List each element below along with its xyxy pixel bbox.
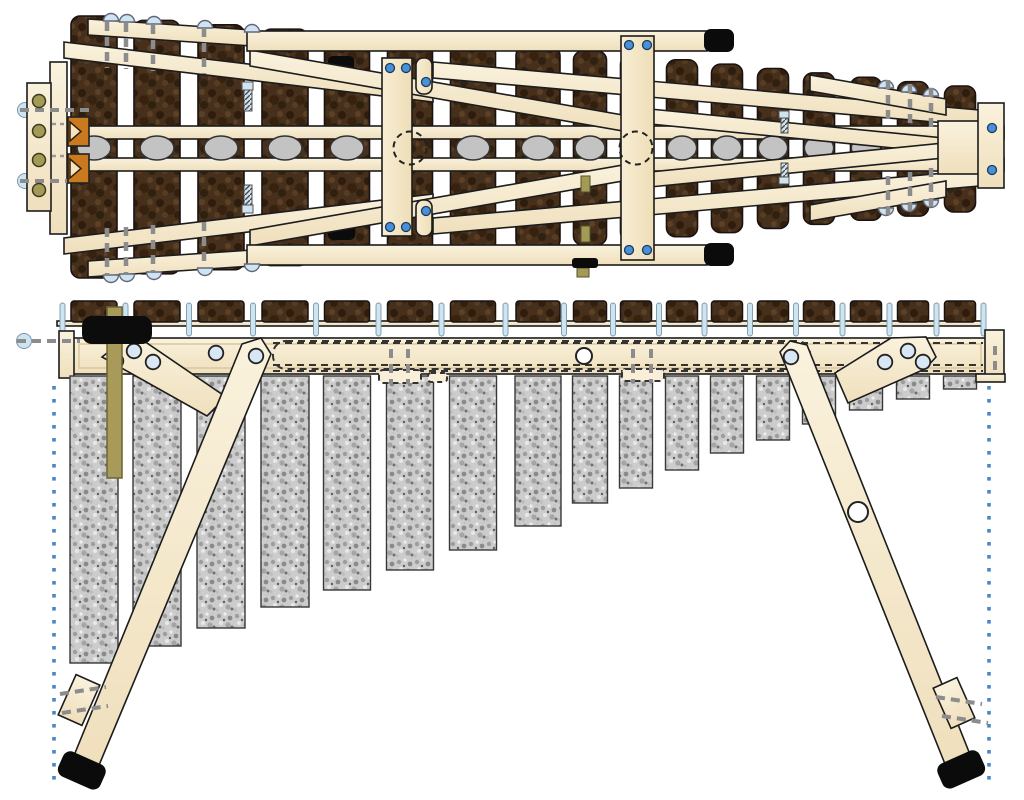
guide-dot bbox=[987, 607, 991, 611]
resonator-top bbox=[204, 136, 238, 160]
guide-dot bbox=[987, 724, 991, 728]
guide-dot bbox=[52, 776, 56, 780]
bar-post bbox=[503, 303, 508, 336]
resonator-top bbox=[140, 136, 174, 160]
guide-dot bbox=[52, 711, 56, 715]
screw-shank bbox=[244, 185, 252, 206]
guide-dot bbox=[987, 386, 991, 390]
bar-elevation bbox=[516, 301, 560, 322]
cleat-block-left bbox=[379, 370, 421, 383]
guide-dot bbox=[987, 542, 991, 546]
end-board-back bbox=[50, 62, 67, 234]
guide-dot bbox=[987, 568, 991, 572]
cleat-stub-left bbox=[428, 373, 447, 382]
end-board-hole bbox=[33, 95, 46, 108]
screw-head bbox=[242, 205, 253, 213]
screw-dot bbox=[422, 207, 431, 216]
end-board-hole bbox=[33, 154, 46, 167]
resonator-tube bbox=[620, 376, 653, 488]
resonator-top bbox=[575, 136, 605, 160]
guide-dot bbox=[987, 646, 991, 650]
dome-screw-head bbox=[198, 21, 213, 28]
bar-elevation bbox=[621, 301, 652, 322]
resonator-tube bbox=[711, 376, 744, 453]
guide-dot bbox=[52, 503, 56, 507]
screw-head bbox=[779, 177, 789, 184]
dome-screw-head bbox=[120, 274, 135, 282]
guide-dot bbox=[987, 438, 991, 442]
end-board-hole bbox=[33, 184, 46, 197]
guide-dot bbox=[52, 750, 56, 754]
bar-elevation bbox=[388, 301, 433, 322]
guide-dot bbox=[52, 659, 56, 663]
cross-brace-2 bbox=[621, 36, 654, 260]
dome-screw-head bbox=[120, 15, 135, 23]
screw-shank bbox=[781, 163, 788, 178]
end-tab bbox=[938, 121, 980, 174]
resonator-tube bbox=[757, 376, 790, 440]
guide-dot bbox=[987, 451, 991, 455]
guide-dot bbox=[987, 399, 991, 403]
end-plate bbox=[978, 103, 1004, 188]
guide-dot bbox=[52, 737, 56, 741]
brace-tab-top bbox=[416, 58, 432, 94]
bar-elevation bbox=[898, 301, 929, 322]
bolt-hole bbox=[784, 350, 799, 365]
screw-shank bbox=[781, 118, 788, 133]
rail-end-cap-left bbox=[59, 331, 74, 378]
resonator-top bbox=[330, 136, 364, 160]
guide-dot bbox=[987, 750, 991, 754]
guide-dot bbox=[987, 581, 991, 585]
guide-dot bbox=[52, 412, 56, 416]
guide-dot bbox=[52, 594, 56, 598]
bar-post bbox=[794, 303, 799, 336]
guide-dot bbox=[987, 425, 991, 429]
guide-dot bbox=[52, 438, 56, 442]
bar-elevation bbox=[945, 301, 976, 322]
rail-end-cap-top bbox=[704, 29, 734, 52]
marimba-plan-diagram bbox=[0, 0, 1024, 800]
end-board-hole bbox=[33, 125, 46, 138]
guide-dot bbox=[52, 542, 56, 546]
guide-dot bbox=[52, 555, 56, 559]
guide-dot bbox=[987, 503, 991, 507]
resonator-tube bbox=[261, 376, 309, 607]
resonator-tubes bbox=[70, 376, 977, 663]
resonator-tube bbox=[450, 376, 497, 550]
guide-dot bbox=[987, 529, 991, 533]
guide-dot bbox=[52, 724, 56, 728]
peg-lower bbox=[581, 226, 590, 242]
bar-elevation bbox=[758, 301, 789, 322]
guide-dot bbox=[52, 581, 56, 585]
bar-post bbox=[934, 303, 939, 336]
bolt-hole bbox=[209, 346, 224, 361]
resonator-tube bbox=[387, 376, 434, 570]
bar-elevation bbox=[804, 301, 835, 322]
dome-screw-head bbox=[245, 264, 260, 272]
side-view bbox=[17, 301, 1006, 792]
guide-dot bbox=[987, 685, 991, 689]
bar-post bbox=[657, 303, 662, 336]
bar-post bbox=[611, 303, 616, 336]
guide-dot bbox=[987, 490, 991, 494]
screw-dot bbox=[988, 124, 997, 133]
guide-dot bbox=[987, 763, 991, 767]
bar-elevation bbox=[712, 301, 743, 322]
bar-post bbox=[562, 303, 567, 336]
resonator-top bbox=[758, 136, 787, 160]
bolt-hole bbox=[249, 349, 264, 364]
bar-elevation bbox=[667, 301, 698, 322]
bar-elevation bbox=[574, 301, 607, 322]
guide-dot bbox=[987, 776, 991, 780]
guide-dot bbox=[52, 464, 56, 468]
open-hole bbox=[848, 502, 868, 522]
guide-dot bbox=[52, 399, 56, 403]
guide-dot bbox=[987, 555, 991, 559]
bolt-hole bbox=[901, 344, 916, 359]
bolt-hole bbox=[146, 355, 161, 370]
screw-dot bbox=[625, 41, 634, 50]
knob-handle bbox=[572, 258, 598, 268]
cross-brace-1 bbox=[382, 58, 412, 236]
screw-dot bbox=[625, 246, 634, 255]
bar-elevation bbox=[451, 301, 496, 322]
bolt-hole bbox=[127, 344, 142, 359]
guide-dot bbox=[987, 633, 991, 637]
screw-dot bbox=[386, 64, 395, 73]
resonator-tube bbox=[515, 376, 561, 526]
screw-dot bbox=[402, 64, 411, 73]
open-hole bbox=[576, 348, 592, 364]
diagram-canvas bbox=[0, 0, 1024, 800]
guide-dot bbox=[987, 620, 991, 624]
cleat-block-right bbox=[622, 369, 664, 381]
resonator-top bbox=[521, 136, 554, 160]
bar-post bbox=[439, 303, 444, 336]
guide-dot bbox=[987, 516, 991, 520]
knob-stem bbox=[577, 268, 589, 277]
guide-dot bbox=[987, 477, 991, 481]
mallet-head bbox=[82, 316, 152, 344]
bar-post bbox=[376, 303, 381, 336]
guide-dot bbox=[987, 659, 991, 663]
guide-dot bbox=[52, 646, 56, 650]
bar-elevation bbox=[198, 301, 244, 322]
bar-elevation bbox=[262, 301, 308, 322]
guide-dot bbox=[52, 763, 56, 767]
dome-screw-head bbox=[198, 268, 213, 276]
guide-dot bbox=[52, 529, 56, 533]
end-step bbox=[976, 374, 1005, 382]
brace-tab-bottom bbox=[416, 200, 432, 236]
guide-dot bbox=[52, 386, 56, 390]
resonator-top bbox=[268, 136, 302, 160]
guide-dot bbox=[987, 737, 991, 741]
guide-dot bbox=[987, 698, 991, 702]
guide-dot bbox=[52, 672, 56, 676]
top-view bbox=[18, 14, 1005, 283]
screw-shank bbox=[244, 90, 252, 111]
resonator-tube bbox=[324, 376, 371, 590]
guide-dot bbox=[52, 516, 56, 520]
resonator-top bbox=[456, 136, 490, 160]
resonator-top bbox=[712, 136, 741, 160]
bolt-hole bbox=[916, 355, 931, 370]
dome-screw-head bbox=[104, 275, 119, 283]
bar-post bbox=[748, 303, 753, 336]
bar-elevation bbox=[851, 301, 882, 322]
rail-end-cap-bottom bbox=[704, 243, 734, 266]
guide-dot bbox=[987, 672, 991, 676]
guide-dot bbox=[987, 412, 991, 416]
resonator-tube bbox=[666, 376, 699, 470]
guide-dot bbox=[52, 685, 56, 689]
bar-post bbox=[702, 303, 707, 336]
guide-dot bbox=[52, 633, 56, 637]
bar-post bbox=[314, 303, 319, 336]
screw-dot bbox=[422, 78, 431, 87]
bar-post bbox=[840, 303, 845, 336]
guide-dot bbox=[52, 698, 56, 702]
bar-post bbox=[887, 303, 892, 336]
dome-screw-head bbox=[104, 14, 119, 21]
guide-dot bbox=[52, 620, 56, 624]
peg-upper bbox=[581, 176, 590, 192]
resonator-tube bbox=[944, 376, 977, 389]
guide-dot bbox=[52, 490, 56, 494]
screw-dot bbox=[988, 166, 997, 175]
screw-dot bbox=[402, 223, 411, 232]
guide-dot bbox=[52, 451, 56, 455]
guide-dot bbox=[52, 568, 56, 572]
dome-screw-head bbox=[245, 25, 260, 32]
screw-dot bbox=[643, 41, 652, 50]
screw-head bbox=[242, 82, 253, 90]
bar-post bbox=[187, 303, 192, 336]
screw-dot bbox=[386, 223, 395, 232]
dome-screw-head bbox=[147, 17, 162, 24]
bar-elevation bbox=[325, 301, 370, 322]
bar-post bbox=[251, 303, 256, 336]
guide-dot bbox=[52, 607, 56, 611]
screw-dot bbox=[643, 246, 652, 255]
guide-dot bbox=[52, 425, 56, 429]
guide-dot bbox=[52, 477, 56, 481]
resonator-tube bbox=[573, 376, 608, 503]
resonator-top bbox=[667, 136, 696, 160]
guide-dot bbox=[987, 594, 991, 598]
dome-screw-head bbox=[147, 272, 162, 280]
guide-dot bbox=[987, 711, 991, 715]
screw-head bbox=[779, 111, 789, 118]
guide-dot bbox=[987, 464, 991, 468]
bolt-hole bbox=[878, 355, 893, 370]
